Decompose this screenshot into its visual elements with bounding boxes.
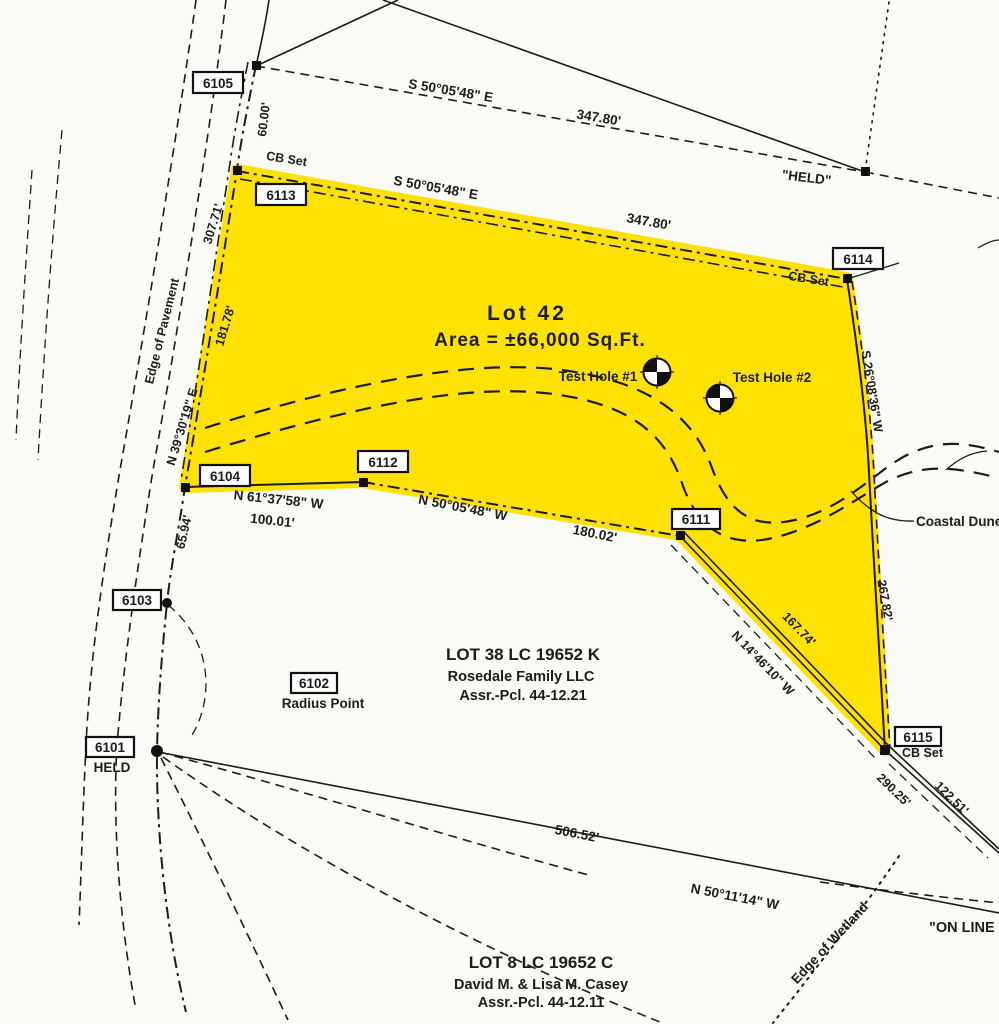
monument-6101	[151, 745, 163, 757]
road-edge-lines	[16, 0, 256, 1012]
monument-6115	[880, 745, 890, 755]
bearing-sw: N 61°37'58" W	[233, 487, 324, 511]
point-box-6115: 6115	[895, 727, 941, 746]
outer-top-line	[256, 66, 865, 172]
point-box-6101: 6101	[86, 737, 134, 757]
test-hole-2-label: Test Hole #2	[733, 370, 812, 385]
test-hole-1-label: Test Hole #1	[559, 369, 638, 384]
distance-se-ext-1: 290.25'	[874, 771, 913, 810]
bottom-dashed-tie	[160, 752, 592, 876]
point-box-6114: 6114	[833, 248, 883, 269]
monument-6111	[676, 531, 685, 540]
distance-top-lot: 347.80'	[626, 210, 672, 233]
pavement-line-4	[16, 170, 32, 440]
plat-sheet: 6105 6113 6114 6104 6112 6111 6103 6102 …	[0, 0, 999, 1024]
cb-set-6113: CB Set	[265, 149, 308, 169]
point-box-6104: 6104	[200, 465, 250, 486]
online-dashed-tie	[820, 882, 999, 903]
point-label-6102: 6102	[299, 676, 329, 691]
on-line-note: "ON LINE	[929, 920, 995, 936]
distance-bottom: 506.52'	[554, 822, 601, 845]
point-box-6103: 6103	[113, 590, 161, 610]
point-label-6111: 6111	[682, 512, 711, 527]
point-box-6105: 6105	[193, 72, 243, 93]
distance-6104-6103: 65.94'	[173, 514, 194, 551]
monument-6103	[162, 598, 172, 608]
held-east-tie	[865, 172, 999, 198]
monument-6112	[359, 478, 368, 487]
held-north-tie	[865, 2, 889, 172]
pavement-line-3	[38, 130, 62, 460]
point-box-6112: 6112	[358, 451, 408, 472]
lot8-owner: David M. & Lisa M. Casey	[454, 977, 628, 993]
held-note-6101: HELD	[94, 760, 131, 775]
corner-tie-1	[256, 0, 398, 66]
lot-name: Lot 42	[487, 302, 567, 325]
survey-plat-drawing: 6105 6113 6114 6104 6112 6111 6103 6102 …	[0, 0, 999, 1024]
coastal-dune-label: Coastal Dune	[916, 514, 999, 529]
point-box-6113: 6113	[256, 184, 306, 205]
point-label-6113: 6113	[266, 188, 296, 203]
point-label-6104: 6104	[210, 469, 241, 484]
monument-6113	[233, 166, 242, 175]
pavement-line-1	[116, 0, 226, 1010]
lot-area: Area = ±66,000 Sq.Ft.	[434, 330, 646, 351]
point-label-6114: 6114	[843, 252, 873, 267]
monument-held	[861, 167, 870, 176]
corner-tie-2	[256, 0, 269, 66]
distance-6105-6113: 60.00'	[255, 102, 273, 138]
edge-of-wetland-label: Edge of Wetland	[788, 899, 871, 986]
point-label-6103: 6103	[122, 593, 153, 608]
lot38-owner: Rosedale Family LLC	[448, 669, 595, 685]
point-label-6101: 6101	[95, 740, 126, 755]
radius-point-label: Radius Point	[282, 696, 365, 711]
se-parallel-dashes-2	[889, 764, 988, 858]
distance-sw: 100.01'	[250, 511, 296, 531]
monument-6114	[843, 274, 852, 283]
dune-hook-1	[946, 451, 987, 470]
bearing-bottom: N 50°11'14" W	[690, 881, 781, 913]
point-label-6112: 6112	[368, 455, 397, 470]
cb-set-6115: CB Set	[902, 746, 944, 760]
lot8-parcel-id: Assr.-Pcl. 44-12.11	[478, 995, 605, 1011]
curve-arc-1	[161, 758, 288, 1020]
curb-return-arc	[168, 605, 206, 740]
lot38-title: LOT 38 LC 19652 K	[446, 645, 601, 664]
point-box-6111: 6111	[672, 509, 720, 529]
lot38-parcel-id: Assr.-Pcl. 44-12.21	[459, 688, 586, 704]
dune-hook-2	[978, 240, 999, 248]
monument-6105	[252, 61, 261, 70]
point-label-6105: 6105	[203, 76, 234, 91]
point-box-6102: 6102	[291, 673, 337, 693]
lot8-title: LOT 8 LC 19652 C	[469, 953, 614, 972]
point-label-6115: 6115	[903, 730, 933, 745]
held-note-top: "HELD"	[781, 167, 832, 188]
monument-6104	[181, 483, 190, 492]
